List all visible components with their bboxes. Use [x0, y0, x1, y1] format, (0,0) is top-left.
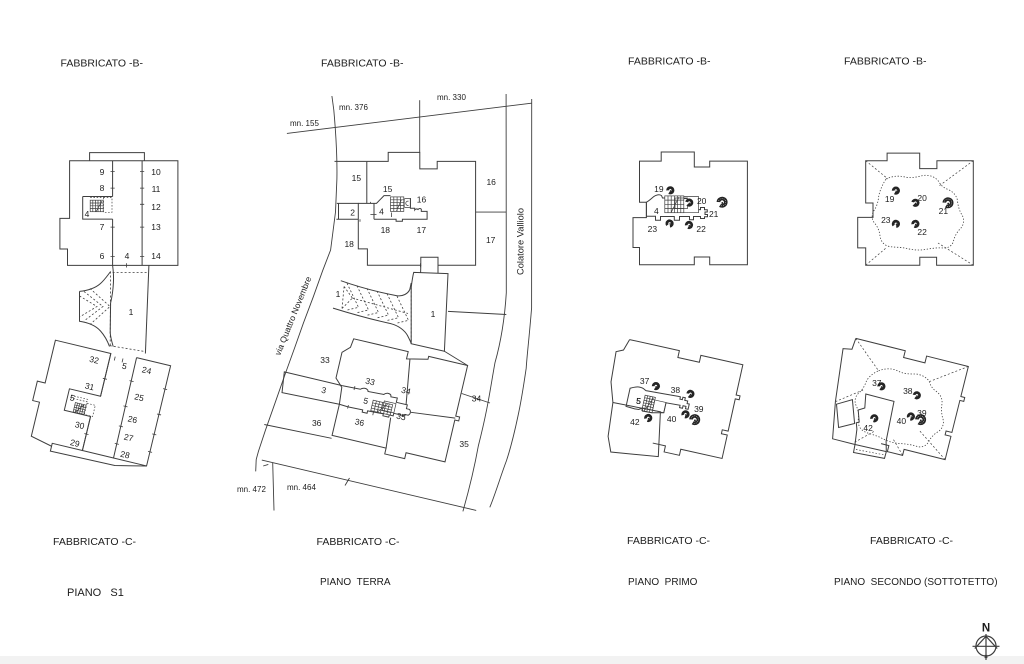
svg-text:N: N — [982, 623, 990, 635]
svg-text:1: 1 — [336, 289, 341, 299]
svg-text:11: 11 — [152, 184, 161, 194]
svg-text:10: 10 — [151, 167, 161, 177]
svg-text:39: 39 — [917, 408, 927, 418]
svg-text:9: 9 — [100, 167, 105, 177]
svg-text:PIANO TERRA: PIANO TERRA — [320, 577, 391, 588]
svg-text:18: 18 — [381, 225, 391, 235]
svg-text:4: 4 — [85, 209, 90, 219]
svg-text:16: 16 — [486, 177, 496, 187]
svg-text:36: 36 — [312, 418, 322, 428]
svg-text:mn. 464: mn. 464 — [287, 483, 316, 492]
svg-text:PIANO S1: PIANO S1 — [67, 587, 124, 599]
svg-text:Colatore Valliolo: Colatore Valliolo — [516, 208, 526, 275]
svg-text:FABBRICATO -B-: FABBRICATO -B- — [628, 56, 711, 68]
svg-text:FABBRICATO -C-: FABBRICATO -C- — [317, 536, 401, 548]
svg-text:42: 42 — [630, 417, 640, 427]
svg-text:37: 37 — [640, 376, 650, 386]
svg-text:23: 23 — [881, 215, 891, 225]
svg-text:40: 40 — [667, 414, 677, 424]
svg-text:FABBRICATO -C-: FABBRICATO -C- — [870, 535, 954, 547]
svg-text:19: 19 — [885, 194, 895, 204]
svg-text:15: 15 — [352, 173, 362, 183]
svg-text:5: 5 — [636, 396, 641, 406]
svg-text:38: 38 — [903, 386, 913, 396]
svg-text:23: 23 — [648, 224, 658, 234]
svg-text:mn. 155: mn. 155 — [290, 119, 319, 128]
svg-text:22: 22 — [917, 227, 927, 237]
svg-text:21: 21 — [939, 206, 949, 216]
svg-text:FABBRICATO -C-: FABBRICATO -C- — [53, 536, 137, 548]
svg-text:18: 18 — [344, 239, 354, 249]
svg-text:4: 4 — [379, 207, 384, 217]
svg-text:PIANO PRIMO: PIANO PRIMO — [628, 577, 698, 588]
svg-text:34: 34 — [472, 394, 482, 404]
svg-text:12: 12 — [151, 202, 161, 212]
svg-text:33: 33 — [320, 355, 330, 365]
svg-text:7: 7 — [100, 222, 105, 232]
svg-text:19: 19 — [654, 184, 664, 194]
svg-text:FABBRICATO -B-: FABBRICATO -B- — [844, 56, 927, 68]
svg-text:8: 8 — [100, 183, 105, 193]
svg-text:42: 42 — [863, 423, 873, 433]
svg-text:37: 37 — [872, 378, 882, 388]
svg-text:13: 13 — [151, 222, 161, 232]
svg-text:40: 40 — [897, 416, 907, 426]
svg-text:14: 14 — [151, 251, 161, 261]
svg-text:17: 17 — [417, 225, 427, 235]
svg-text:6: 6 — [100, 251, 105, 261]
svg-text:15: 15 — [383, 184, 393, 194]
svg-text:22: 22 — [696, 224, 706, 234]
svg-text:1: 1 — [431, 309, 436, 319]
svg-text:16: 16 — [417, 195, 427, 205]
svg-text:39: 39 — [694, 404, 704, 414]
svg-text:PIANO SECONDO (SOTTOTETTO): PIANO SECONDO (SOTTOTETTO) — [834, 577, 998, 588]
svg-text:4: 4 — [125, 251, 130, 261]
svg-text:35: 35 — [459, 439, 469, 449]
svg-text:2: 2 — [350, 208, 355, 218]
svg-text:FABBRICATO -C-: FABBRICATO -C- — [627, 535, 711, 547]
svg-text:mn. 376: mn. 376 — [339, 103, 368, 112]
svg-text:21: 21 — [709, 209, 719, 219]
svg-text:17: 17 — [486, 235, 496, 245]
svg-text:4: 4 — [654, 206, 659, 216]
svg-text:38: 38 — [671, 385, 681, 395]
svg-text:FABBRICATO -B-: FABBRICATO -B- — [321, 58, 404, 70]
svg-text:20: 20 — [697, 196, 707, 206]
svg-text:mn. 330: mn. 330 — [437, 93, 466, 102]
svg-text:1: 1 — [129, 307, 134, 317]
svg-text:20: 20 — [917, 193, 927, 203]
svg-text:mn. 472: mn. 472 — [237, 485, 266, 494]
svg-text:FABBRICATO -B-: FABBRICATO -B- — [61, 58, 144, 70]
